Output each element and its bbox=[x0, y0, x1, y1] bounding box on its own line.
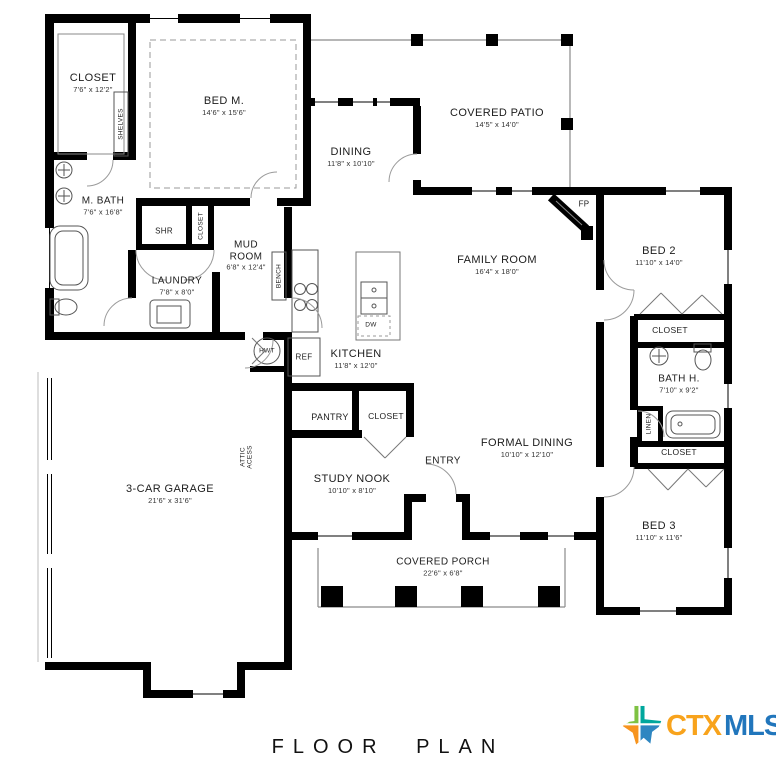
texas-icon bbox=[621, 705, 663, 747]
room-name: M. BATH bbox=[82, 195, 125, 207]
master-tub-icon bbox=[50, 226, 88, 290]
room-label-bath-h: BATH H. 7'10" x 9'2" bbox=[658, 373, 700, 394]
room-dims: 7'10" x 9'2" bbox=[658, 386, 700, 395]
pantry-label: PANTRY bbox=[311, 412, 348, 422]
room-dims: 7'6" x 16'8" bbox=[82, 208, 125, 217]
cooktop-icon bbox=[292, 250, 318, 332]
room-label-bed-m: BED M. 14'6" x 15'6" bbox=[202, 95, 246, 117]
hall-bath-sink-icon bbox=[650, 347, 668, 365]
room-label-study-nook: STUDY NOOK 10'10" x 8'10" bbox=[314, 473, 391, 495]
bench-label: BENCH bbox=[275, 264, 282, 288]
room-dims: 6'8" x 12'4" bbox=[226, 264, 265, 273]
room-dims: 21'6" x 31'6" bbox=[126, 497, 214, 506]
room-name: LAUNDRY bbox=[152, 275, 202, 287]
fireplace-label: FP bbox=[579, 199, 590, 208]
room-dims: 10'10" x 12'10" bbox=[481, 451, 573, 460]
room-name: DINING bbox=[327, 146, 375, 159]
room-name: KITCHEN bbox=[330, 348, 381, 361]
room-name: STUDY NOOK bbox=[314, 473, 391, 486]
room-name: BED 2 bbox=[635, 245, 683, 258]
room-dims: 7'8" x 8'0" bbox=[152, 288, 202, 297]
nook-closet-label: CLOSET bbox=[368, 412, 404, 422]
room-dims: 14'6" x 15'6" bbox=[202, 109, 246, 118]
room-label-mud-room: MUD ROOM 6'8" x 12'4" bbox=[226, 240, 265, 273]
room-dims: 16'4" x 18'0" bbox=[457, 268, 537, 277]
room-dims: 11'8" x 10'10" bbox=[327, 160, 375, 169]
room-name: 3-CAR GARAGE bbox=[126, 483, 214, 496]
room-name: FORMAL DINING bbox=[481, 437, 573, 450]
floor-plan: CLOSET 7'6" x 12'2" BED M. 14'6" x 15'6"… bbox=[0, 0, 776, 768]
room-label-bed-2: BED 2 11'10" x 14'0" bbox=[635, 245, 683, 267]
shower-label: SHR bbox=[155, 226, 173, 235]
master-hall-closet-label: CLOSET bbox=[197, 212, 204, 240]
room-label-laundry: LAUNDRY 7'8" x 8'0" bbox=[152, 275, 202, 296]
room-name-line2: ROOM bbox=[226, 251, 265, 263]
room-dims: 11'10" x 14'0" bbox=[635, 259, 683, 268]
room-dims: 10'10" x 8'10" bbox=[314, 487, 391, 496]
room-dims: 14'5" x 14'0" bbox=[450, 121, 544, 130]
master-sinks-icon bbox=[56, 162, 72, 204]
room-name: FAMILY ROOM bbox=[457, 254, 537, 267]
shelves-label: SHELVES bbox=[117, 108, 124, 140]
linen-label: LINEN bbox=[645, 414, 652, 435]
room-name: BED M. bbox=[202, 95, 246, 108]
master-toilet-icon bbox=[50, 299, 77, 315]
logo-text-mls: MLS bbox=[724, 710, 776, 743]
island-sink-icon bbox=[356, 252, 400, 340]
walls bbox=[45, 14, 732, 698]
fridge-label: REF bbox=[296, 352, 313, 361]
room-name: BED 3 bbox=[636, 520, 683, 533]
dishwasher-label: DW bbox=[365, 321, 376, 328]
water-heater-label: HWT bbox=[259, 347, 275, 354]
room-dims: 22'6" x 6'8" bbox=[396, 569, 490, 578]
room-name: COVERED PATIO bbox=[450, 107, 544, 120]
attic-line2: ACESS bbox=[247, 445, 254, 469]
room-name-line1: MUD bbox=[226, 240, 265, 252]
bed3-closet-label: CLOSET bbox=[661, 448, 697, 458]
attic-line1: ATTIC bbox=[240, 445, 247, 469]
bed2-closet-label: CLOSET bbox=[652, 326, 688, 336]
room-label-m-bath: M. BATH 7'6" x 16'8" bbox=[82, 195, 125, 216]
washer-dryer-icon bbox=[150, 300, 190, 328]
room-name: COVERED PORCH bbox=[396, 556, 490, 568]
room-label-kitchen: KITCHEN 11'8" x 12'0" bbox=[330, 348, 381, 370]
room-dims: 11'8" x 12'0" bbox=[330, 362, 381, 371]
room-label-dining: DINING 11'8" x 10'10" bbox=[327, 146, 375, 168]
room-name: CLOSET bbox=[70, 72, 116, 85]
room-dims: 11'10" x 11'6" bbox=[636, 534, 683, 543]
room-name: ENTRY bbox=[425, 455, 461, 467]
room-label-formal-dining: FORMAL DINING 10'10" x 12'10" bbox=[481, 437, 573, 459]
windows bbox=[45, 14, 732, 698]
bifold-doors bbox=[252, 293, 724, 490]
hall-bath-tub-icon bbox=[666, 411, 720, 438]
room-label-garage: 3-CAR GARAGE 21'6" x 31'6" bbox=[126, 483, 214, 505]
room-label-covered-patio: COVERED PATIO 14'5" x 14'0" bbox=[450, 107, 544, 129]
room-dims: 7'6" x 12'2" bbox=[70, 86, 116, 95]
attic-access-label: ATTIC ACESS bbox=[240, 445, 255, 469]
room-label-master-closet: CLOSET 7'6" x 12'2" bbox=[70, 72, 116, 94]
room-label-covered-porch: COVERED PORCH 22'6" x 6'8" bbox=[396, 556, 490, 577]
room-name: BATH H. bbox=[658, 373, 700, 385]
ctxmls-logo: CTXMLS bbox=[621, 705, 776, 747]
room-label-entry: ENTRY bbox=[425, 455, 461, 467]
room-label-family-room: FAMILY ROOM 16'4" x 18'0" bbox=[457, 254, 537, 276]
room-label-bed-3: BED 3 11'10" x 11'6" bbox=[636, 520, 683, 542]
logo-text-ctx: CTX bbox=[666, 710, 721, 743]
